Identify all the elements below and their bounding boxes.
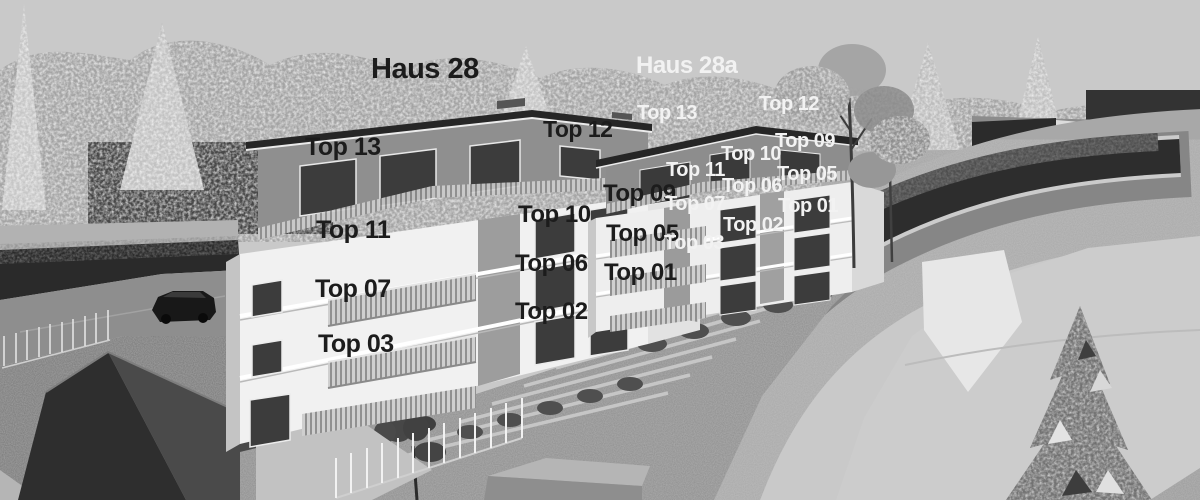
parked-car (152, 291, 216, 324)
rendering-stage: Haus 28Haus 28aTop 13Top 12Top 11Top 10T… (0, 0, 1200, 500)
architectural-scene (0, 0, 1200, 500)
haus28a-balconies (610, 226, 706, 332)
